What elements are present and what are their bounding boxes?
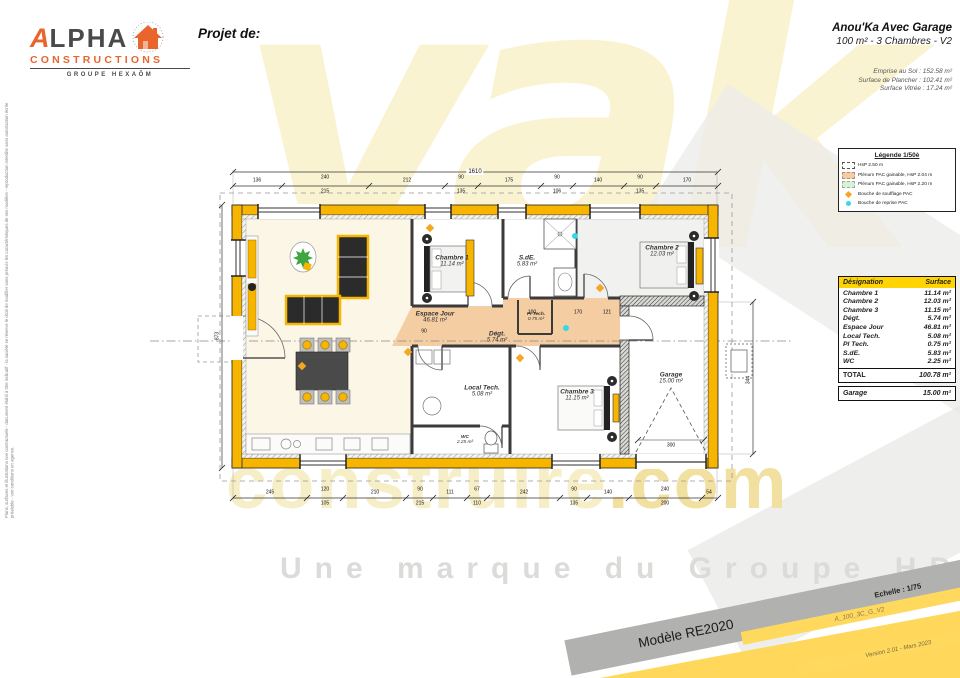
legend-label: Plénum PAC gainable, HsP 2.20 m: [858, 182, 932, 187]
garage-label: Garage: [843, 390, 867, 397]
stat-vitree: Surface Vitrée : 17.24 m²: [652, 85, 952, 94]
dim-label: 215: [416, 502, 424, 507]
cell-name: Espace Jour: [843, 324, 883, 331]
dim-label: 175: [505, 179, 513, 184]
surface-table: Désignation Surface Chambre 111.14 m² Ch…: [838, 276, 956, 401]
cell-area: 5.74 m²: [928, 315, 951, 322]
dim-label: 54: [706, 491, 712, 496]
room-name: Chambre 2: [645, 245, 679, 252]
dim-label: 240: [661, 488, 669, 493]
cell-area: 5.08 m²: [928, 333, 951, 340]
toilet: [484, 431, 498, 453]
project-label: Projet de:: [198, 26, 260, 41]
logo-letter-a: A: [30, 23, 50, 54]
room-name: Chambre 3: [560, 389, 594, 396]
legend-item: Plénum PAC gainable, HsP 2.20 m: [842, 181, 952, 188]
dim-label: 135: [570, 502, 578, 507]
garage-value: 15.00 m²: [923, 390, 951, 397]
dim-label: 105: [321, 502, 329, 507]
table-total-row: TOTAL100.78 m²: [839, 368, 955, 382]
alpha-constructions-logo: ALPHA CONSTRUCTIONS GROUPE HEXAÔM: [30, 22, 190, 78]
dim-right-side: 344: [747, 376, 752, 384]
dim-label: 242: [520, 491, 528, 496]
legal-disclaimer: Plans, surfaces et illustrations non con…: [4, 88, 16, 518]
floor-espace-jour: [246, 219, 412, 454]
cell-area: 11.14 m²: [924, 290, 951, 297]
room-label-local-tech: Local Tech.5.08 m²: [464, 385, 500, 398]
cell-area: 12.03 m²: [924, 298, 951, 305]
room-name: Garage: [659, 372, 683, 379]
cell-name: Dégt.: [843, 315, 860, 322]
legend-swatch-orange: [842, 172, 855, 179]
room-label-chambre2: Chambre 212.03 m²: [645, 245, 679, 258]
room-name: Dégt.: [487, 331, 507, 338]
logo-constructions: CONSTRUCTIONS: [30, 54, 190, 69]
room-label-chambre3: Chambre 311.15 m²: [560, 389, 594, 402]
room-label-sde: S.dE.5.83 m²: [517, 255, 537, 268]
table-header: Désignation Surface: [839, 277, 955, 288]
legend-title: Légende 1/50è: [842, 152, 952, 159]
dim-label: 240: [321, 176, 329, 181]
logo-brand: LPHA: [50, 23, 129, 54]
dim-label: 106: [553, 190, 561, 195]
dim-label: 110: [473, 502, 481, 507]
dim-label: 140: [604, 491, 612, 496]
dim-label: 212: [403, 179, 411, 184]
cell-area: 5.83 m²: [928, 350, 951, 357]
legend-swatch-dashed: [842, 162, 855, 169]
dim-label: 90: [637, 176, 643, 181]
table-row: WC2.25 m²: [839, 357, 955, 366]
dim-label: 90: [571, 488, 577, 493]
legend-item: HsP 2.50 m: [842, 162, 952, 169]
legend-box: Légende 1/50è HsP 2.50 m Plénum PAC gain…: [838, 148, 956, 212]
room-area: 0.75 m²: [527, 317, 545, 322]
room-area: 12.03 m²: [645, 252, 679, 258]
kitchen-wall-counter: [246, 236, 258, 336]
window-living-bay: [258, 204, 320, 219]
supply-vent-icon: [842, 191, 855, 198]
dim-label: 170: [683, 179, 691, 184]
cell-area: 46.81 m²: [924, 324, 951, 331]
kitchen-counter: [246, 434, 410, 454]
stat-plancher: Surface de Plancher : 102.41 m²: [652, 77, 952, 86]
model-subtitle: 100 m² - 3 Chambres - V2: [652, 36, 952, 47]
dim-label: 120: [321, 488, 329, 493]
window-chambre2-side: [704, 238, 719, 292]
table-row: Espace Jour46.81 m²: [839, 322, 955, 331]
legend-label: Bouche de reprise PAC: [858, 201, 908, 206]
room-area: 5.74 m²: [487, 338, 507, 344]
cell-name: Chambre 2: [843, 298, 878, 305]
return-vent-icon: [563, 325, 569, 331]
dining-table: [296, 338, 350, 404]
project-title-block: Anou'Ka Avec Garage 100 m² - 3 Chambres …: [652, 22, 952, 47]
room-label-wc: WC2.25 m²: [457, 435, 473, 445]
table-row: Dégt.5.74 m²: [839, 314, 955, 323]
table-row: Chambre 111.14 m²: [839, 288, 955, 297]
stat-emprise: Emprise au Sol : 152.58 m²: [652, 68, 952, 77]
room-name: Espace Jour: [416, 311, 455, 318]
dim-label: 245: [266, 491, 274, 496]
cell-area: 11.15 m²: [924, 307, 951, 314]
return-vent-icon: [572, 233, 578, 239]
shower: [544, 219, 576, 249]
dim-label: 136: [253, 179, 261, 184]
legend-label: Bouche de soufflage PAC: [858, 192, 913, 197]
table-row: Pl Tech.0.75 m²: [839, 340, 955, 349]
legend-item: Bouche de soufflage PAC: [842, 191, 952, 198]
legend-label: HsP 2.50 m: [858, 163, 883, 168]
cell-name: Chambre 1: [843, 290, 878, 297]
dim-label: 67: [474, 488, 480, 493]
plant: [290, 242, 316, 272]
window-chambre3: [552, 454, 600, 469]
dim-label: 140: [594, 179, 602, 184]
table-row: Chambre 311.15 m²: [839, 305, 955, 314]
dim-label: 121: [603, 311, 611, 316]
room-area: 46.81 m²: [416, 318, 455, 324]
surface-stats: Emprise au Sol : 152.58 m² Surface de Pl…: [652, 68, 952, 94]
room-label-chambre1: Chambre 111.14 m²: [435, 255, 469, 268]
sink: [554, 268, 576, 296]
dim-label: 100: [528, 311, 536, 316]
room-area: 11.14 m²: [435, 262, 469, 268]
window-kitchen: [300, 454, 346, 469]
total-value: 100.78 m²: [919, 372, 951, 379]
room-name: S.dE.: [517, 255, 537, 262]
legend-item: Plénum PAC gainable, HsP 2.04 m: [842, 172, 952, 179]
dim-label: 90: [421, 330, 427, 335]
heat-pump-unit: [726, 344, 752, 378]
dim-label: 170: [574, 311, 582, 316]
dim-overall-width: 1610: [466, 169, 483, 175]
room-label-degagement: Dégt.5.74 m²: [487, 331, 507, 344]
cell-name: Local Tech.: [843, 333, 880, 340]
table-row: Chambre 212.03 m²: [839, 297, 955, 306]
dim-label: 215: [321, 190, 329, 195]
room-area: 11.15 m²: [560, 396, 594, 402]
room-area: 5.83 m²: [517, 262, 537, 268]
dim-label: 90: [417, 488, 423, 493]
dim-label: 210: [371, 491, 379, 496]
room-name: Chambre 1: [435, 255, 469, 262]
model-title: Anou'Ka Avec Garage: [652, 22, 952, 34]
house-icon: [130, 22, 166, 54]
window-living-side: [231, 240, 246, 276]
table-garage-row: Garage15.00 m²: [838, 386, 956, 401]
logo-group-name: GROUPE HEXAÔM: [30, 72, 190, 78]
cell-name: S.dE.: [843, 350, 860, 357]
dim-label: 90: [458, 176, 464, 181]
room-area: 15.00 m²: [659, 379, 683, 385]
window-sde: [498, 204, 526, 219]
total-label: TOTAL: [843, 372, 866, 379]
table-row: Local Tech.5.08 m²: [839, 331, 955, 340]
dim-label: 135: [457, 190, 465, 195]
legend-label: Plénum PAC gainable, HsP 2.04 m: [858, 173, 932, 178]
room-area: 5.08 m²: [464, 392, 500, 398]
cell-name: Chambre 3: [843, 307, 878, 314]
room-area: 2.25 m²: [457, 440, 473, 445]
room-name: Local Tech.: [464, 385, 500, 392]
return-vent-icon: [842, 200, 855, 207]
col-surface: Surface: [925, 279, 951, 286]
col-designation: Désignation: [843, 279, 883, 286]
cell-name: Pl Tech.: [843, 341, 869, 348]
floor-plan: [0, 0, 960, 678]
dim-left-total: 873: [216, 332, 221, 340]
dim-label: 135: [636, 190, 644, 195]
table-row: S.dE.5.83 m²: [839, 348, 955, 357]
dim-label: 90: [554, 176, 560, 181]
window-chambre2: [590, 204, 640, 219]
legend-swatch-green: [842, 181, 855, 188]
legend-item: Bouche de reprise PAC: [842, 200, 952, 207]
room-label-espace-jour: Espace Jour46.81 m²: [416, 311, 455, 324]
garage-door-opening: [636, 454, 706, 469]
window-chambre1: [425, 204, 451, 219]
dim-label: 200: [661, 502, 669, 507]
cell-name: WC: [843, 358, 854, 365]
drawing-sheet: yak construire.com Une marque du Groupe …: [0, 0, 960, 678]
cell-area: 2.25 m²: [928, 358, 951, 365]
dim-garage-door: 300: [667, 444, 675, 449]
cell-area: 0.75 m²: [928, 341, 951, 348]
room-label-garage: Garage15.00 m²: [659, 372, 683, 385]
dim-label: 111: [446, 491, 454, 496]
